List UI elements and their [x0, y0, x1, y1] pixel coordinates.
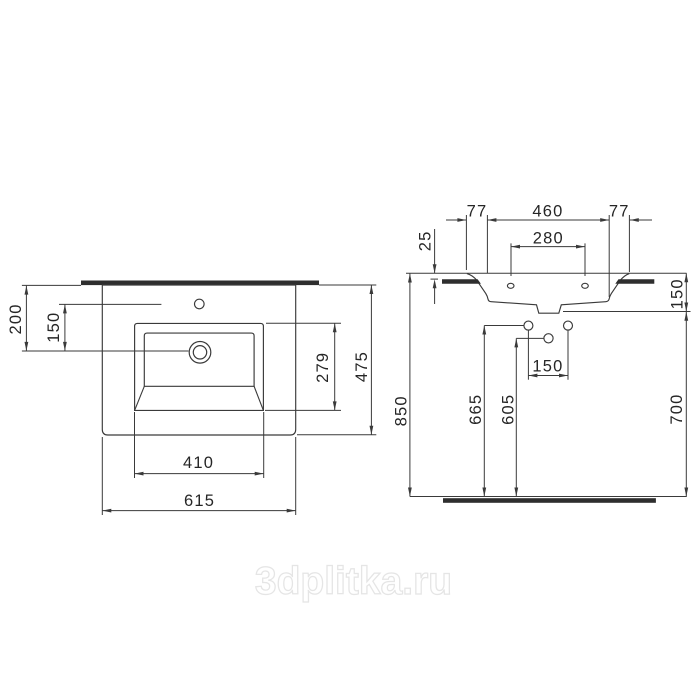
svg-text:460: 460 [532, 202, 563, 220]
svg-text:605: 605 [500, 394, 518, 425]
svg-text:77: 77 [467, 203, 488, 221]
svg-text:615: 615 [184, 492, 215, 510]
svg-text:850: 850 [393, 395, 411, 426]
svg-text:279: 279 [314, 352, 332, 383]
svg-text:700: 700 [668, 393, 686, 424]
svg-text:410: 410 [183, 454, 214, 472]
svg-text:150: 150 [532, 357, 563, 375]
svg-text:665: 665 [467, 394, 485, 425]
svg-text:200: 200 [7, 303, 25, 334]
svg-text:77: 77 [609, 203, 630, 221]
svg-text:280: 280 [533, 229, 564, 247]
svg-text:475: 475 [353, 351, 371, 382]
svg-text:25: 25 [417, 231, 435, 252]
svg-text:150: 150 [45, 312, 63, 343]
svg-text:150: 150 [669, 278, 687, 309]
